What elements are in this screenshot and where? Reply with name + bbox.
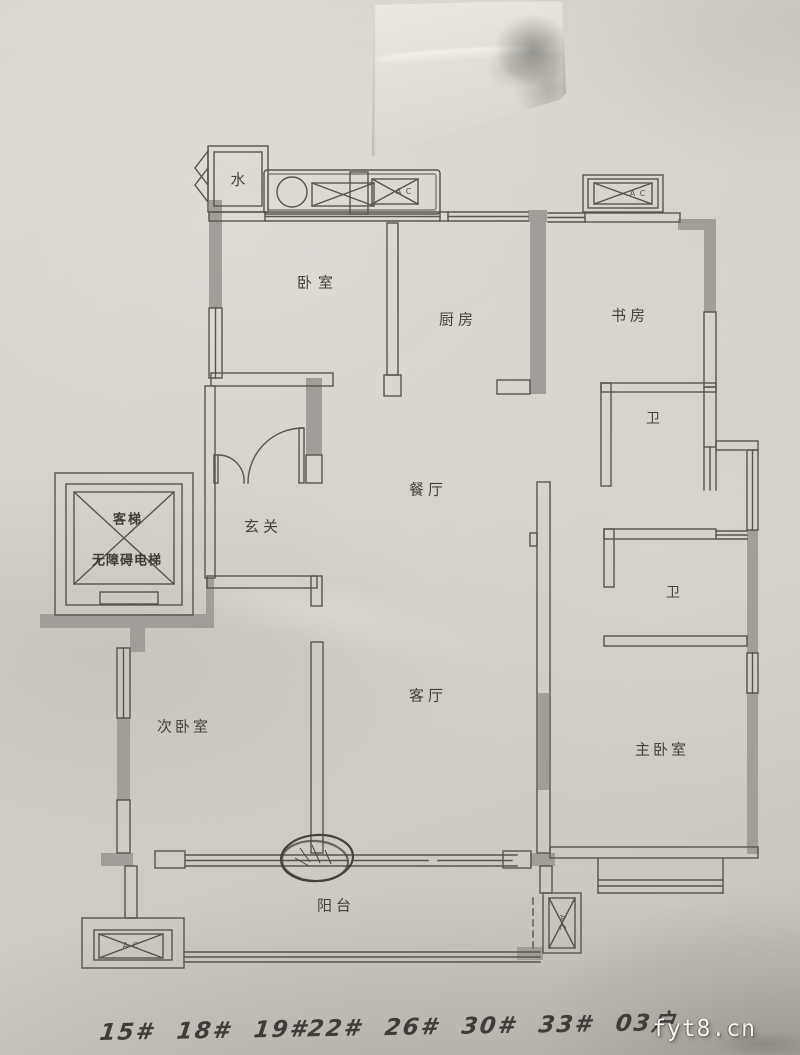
- ac-label-balcony-right: A C: [558, 915, 566, 932]
- room-label-master-bedroom: 主卧室: [635, 743, 689, 758]
- room-label-elevator-bottom: 无障碍电梯: [92, 555, 162, 568]
- structural-walls: [40, 200, 758, 960]
- pen-circle-annotation: [279, 833, 354, 884]
- room-label-bath-lower: 卫: [666, 586, 680, 600]
- room-label-bedroom: 卧室: [297, 276, 339, 291]
- balcony-walls: [82, 866, 581, 968]
- entry-door-arc: [214, 428, 304, 483]
- room-label-kitchen: 厨房: [439, 313, 477, 328]
- room-label-study: 书房: [611, 309, 649, 324]
- bedroom-walls: [209, 308, 333, 386]
- floorplan-photo: 水 卧室 厨房 书房 卫 卫 餐厅 玄关 客梯 无障碍电梯 次卧室 客厅 主卧室…: [0, 0, 800, 1055]
- ac-label-top-right: A C: [630, 190, 647, 198]
- ac-label-top: A C: [396, 188, 413, 196]
- entry-walls: [205, 386, 322, 606]
- room-label-elevator-top: 客梯: [113, 514, 143, 527]
- room-label-entry: 玄关: [244, 520, 282, 535]
- room-label-balcony: 阳台: [317, 899, 355, 914]
- corridor-wall: [530, 482, 550, 853]
- bath-upper-walls: [601, 383, 716, 486]
- washer-icon: [277, 177, 307, 207]
- ac-label-bottom-left: A C: [123, 942, 140, 950]
- room-label-secondary-bedroom: 次卧室: [157, 720, 211, 735]
- utility-platform: [264, 170, 440, 214]
- room-label-living: 客厅: [409, 689, 447, 704]
- ac-platform-topright: [583, 175, 663, 212]
- secondary-bedroom-walls: [117, 642, 323, 853]
- master-bedroom-walls: [550, 847, 758, 893]
- south-wall: [155, 851, 531, 868]
- room-label-water: 水: [230, 173, 245, 188]
- room-label-dining: 餐厅: [409, 483, 447, 498]
- elevator-shaft: [55, 473, 193, 615]
- floorplan-drawing: [0, 0, 800, 1055]
- room-label-bath-upper: 卫: [646, 412, 660, 426]
- kitchen-walls: [384, 223, 530, 396]
- watermark: fyt8.cn: [652, 1016, 756, 1042]
